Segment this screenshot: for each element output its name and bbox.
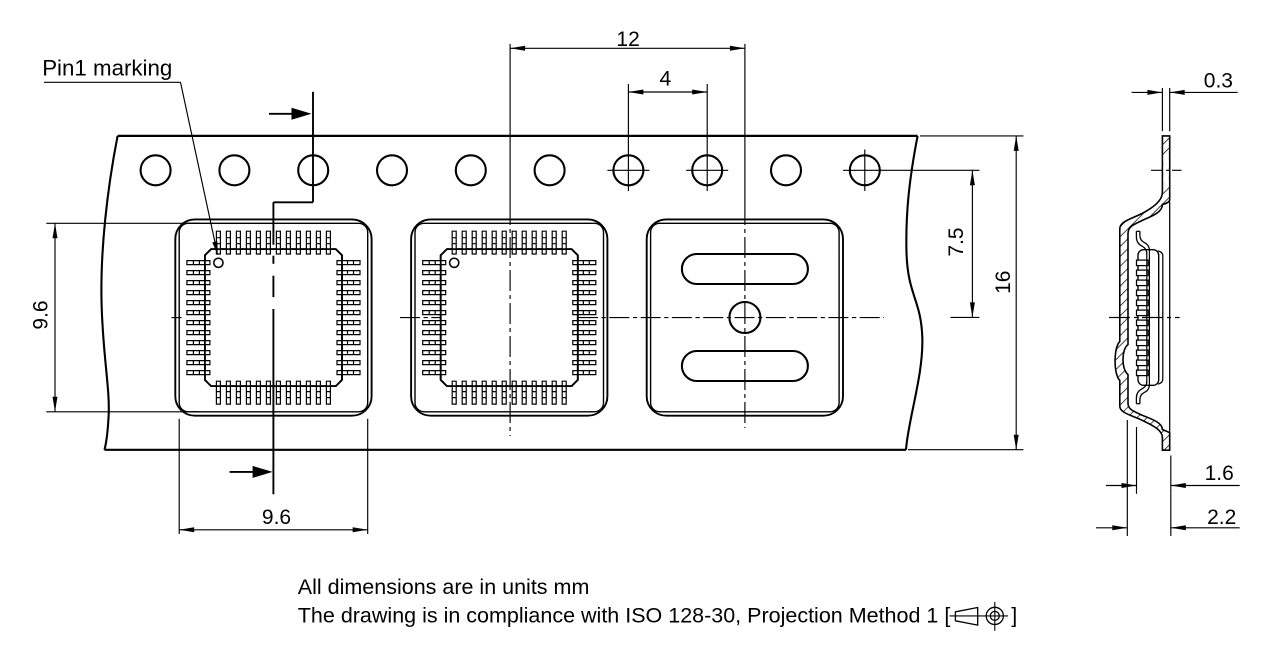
svg-text:12: 12 [616, 28, 639, 51]
svg-text:16: 16 [992, 271, 1015, 294]
svg-text:All dimensions are in units mm: All dimensions are in units mm [298, 575, 590, 599]
svg-text:4: 4 [659, 68, 671, 91]
svg-text:9.6: 9.6 [262, 506, 291, 529]
svg-text:The drawing is in compliance w: The drawing is in compliance with ISO 12… [298, 603, 951, 627]
svg-text:2.2: 2.2 [1207, 506, 1236, 529]
svg-text:1.6: 1.6 [1205, 462, 1234, 485]
svg-text:9.6: 9.6 [30, 300, 53, 329]
svg-text:Pin1 marking: Pin1 marking [42, 56, 172, 81]
svg-text:]: ] [1011, 603, 1017, 627]
svg-text:7.5: 7.5 [945, 227, 968, 256]
svg-text:0.3: 0.3 [1204, 70, 1233, 93]
